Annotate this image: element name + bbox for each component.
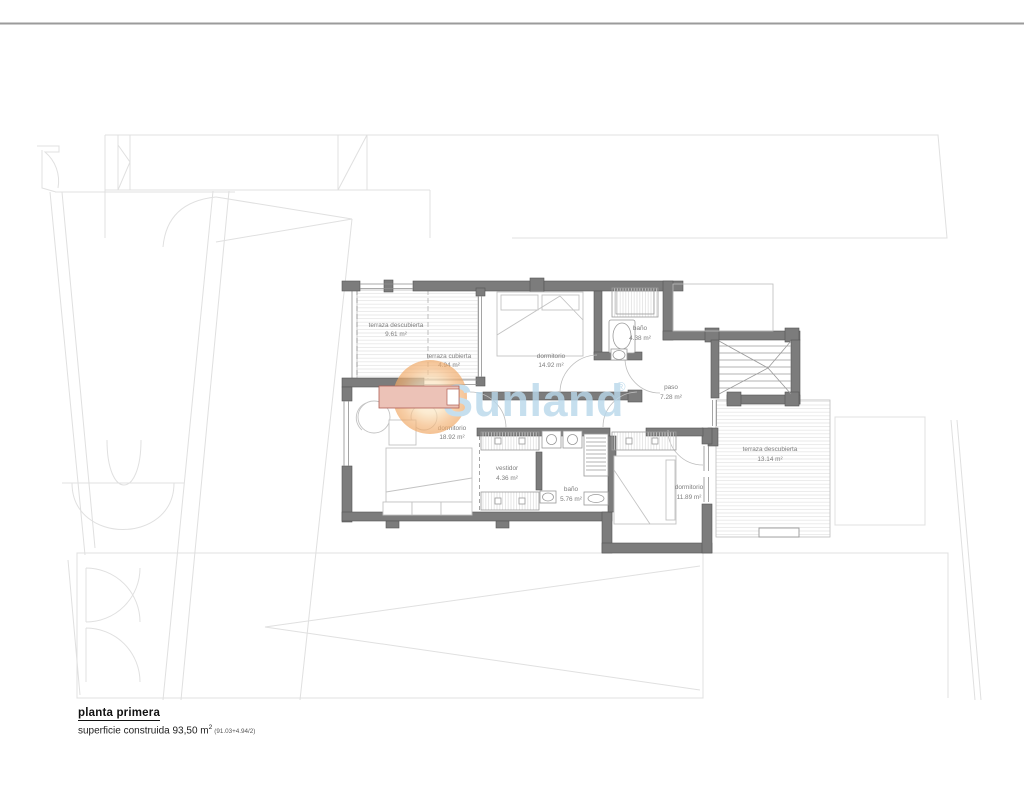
page-title: planta primera <box>78 707 160 721</box>
room-area: 4.38 m² <box>629 335 651 342</box>
room-label: terraza cubierta <box>427 353 472 360</box>
bed-double-top <box>497 292 583 356</box>
room-label: baño <box>633 325 648 332</box>
room-label: vestidor <box>496 465 519 472</box>
room-label: terraza descubierta <box>369 322 424 329</box>
sink <box>563 431 582 448</box>
room-label: dormitorio <box>537 353 566 360</box>
shower <box>612 288 658 317</box>
built-area-sup: 2 <box>209 724 213 731</box>
room-area: 7.28 m² <box>660 394 682 401</box>
stair-void-outline <box>673 284 773 331</box>
room-label: terraza descubierta <box>743 446 798 453</box>
blueprint-page: terraza descubierta 9.61 m² terraza cubi… <box>0 0 1024 800</box>
stairs <box>719 341 791 394</box>
bed-single-right <box>614 456 676 524</box>
room-area: 11.89 m² <box>677 494 702 501</box>
watermark-brand: Sunland <box>443 375 624 426</box>
built-area-text: superficie construida 93,50 m2(91.03+4.9… <box>78 724 255 736</box>
registered-mark-icon: ® <box>616 379 626 394</box>
room-area: 4.36 m² <box>496 475 518 482</box>
room-label: baño <box>564 486 579 493</box>
room-area: 13.14 m² <box>757 456 782 463</box>
room-area: 5.76 m² <box>560 496 582 503</box>
room-label: dormitorio <box>675 484 704 491</box>
desk-highlight <box>379 386 459 408</box>
bed-double-left <box>383 448 472 515</box>
room-area: 18.92 m² <box>439 434 464 441</box>
room-area: 14.92 m² <box>538 362 563 369</box>
title-block: planta primera superficie construida 93,… <box>78 703 255 736</box>
built-area-label: superficie construida 93,50 m <box>78 725 209 736</box>
room-label: paso <box>664 384 678 391</box>
sink <box>542 431 561 448</box>
floor-plan-canvas: terraza descubierta 9.61 m² terraza cubi… <box>0 0 1024 800</box>
room-area: 9.61 m² <box>385 331 407 338</box>
built-area-note: (91.03+4.94/2) <box>214 728 255 735</box>
